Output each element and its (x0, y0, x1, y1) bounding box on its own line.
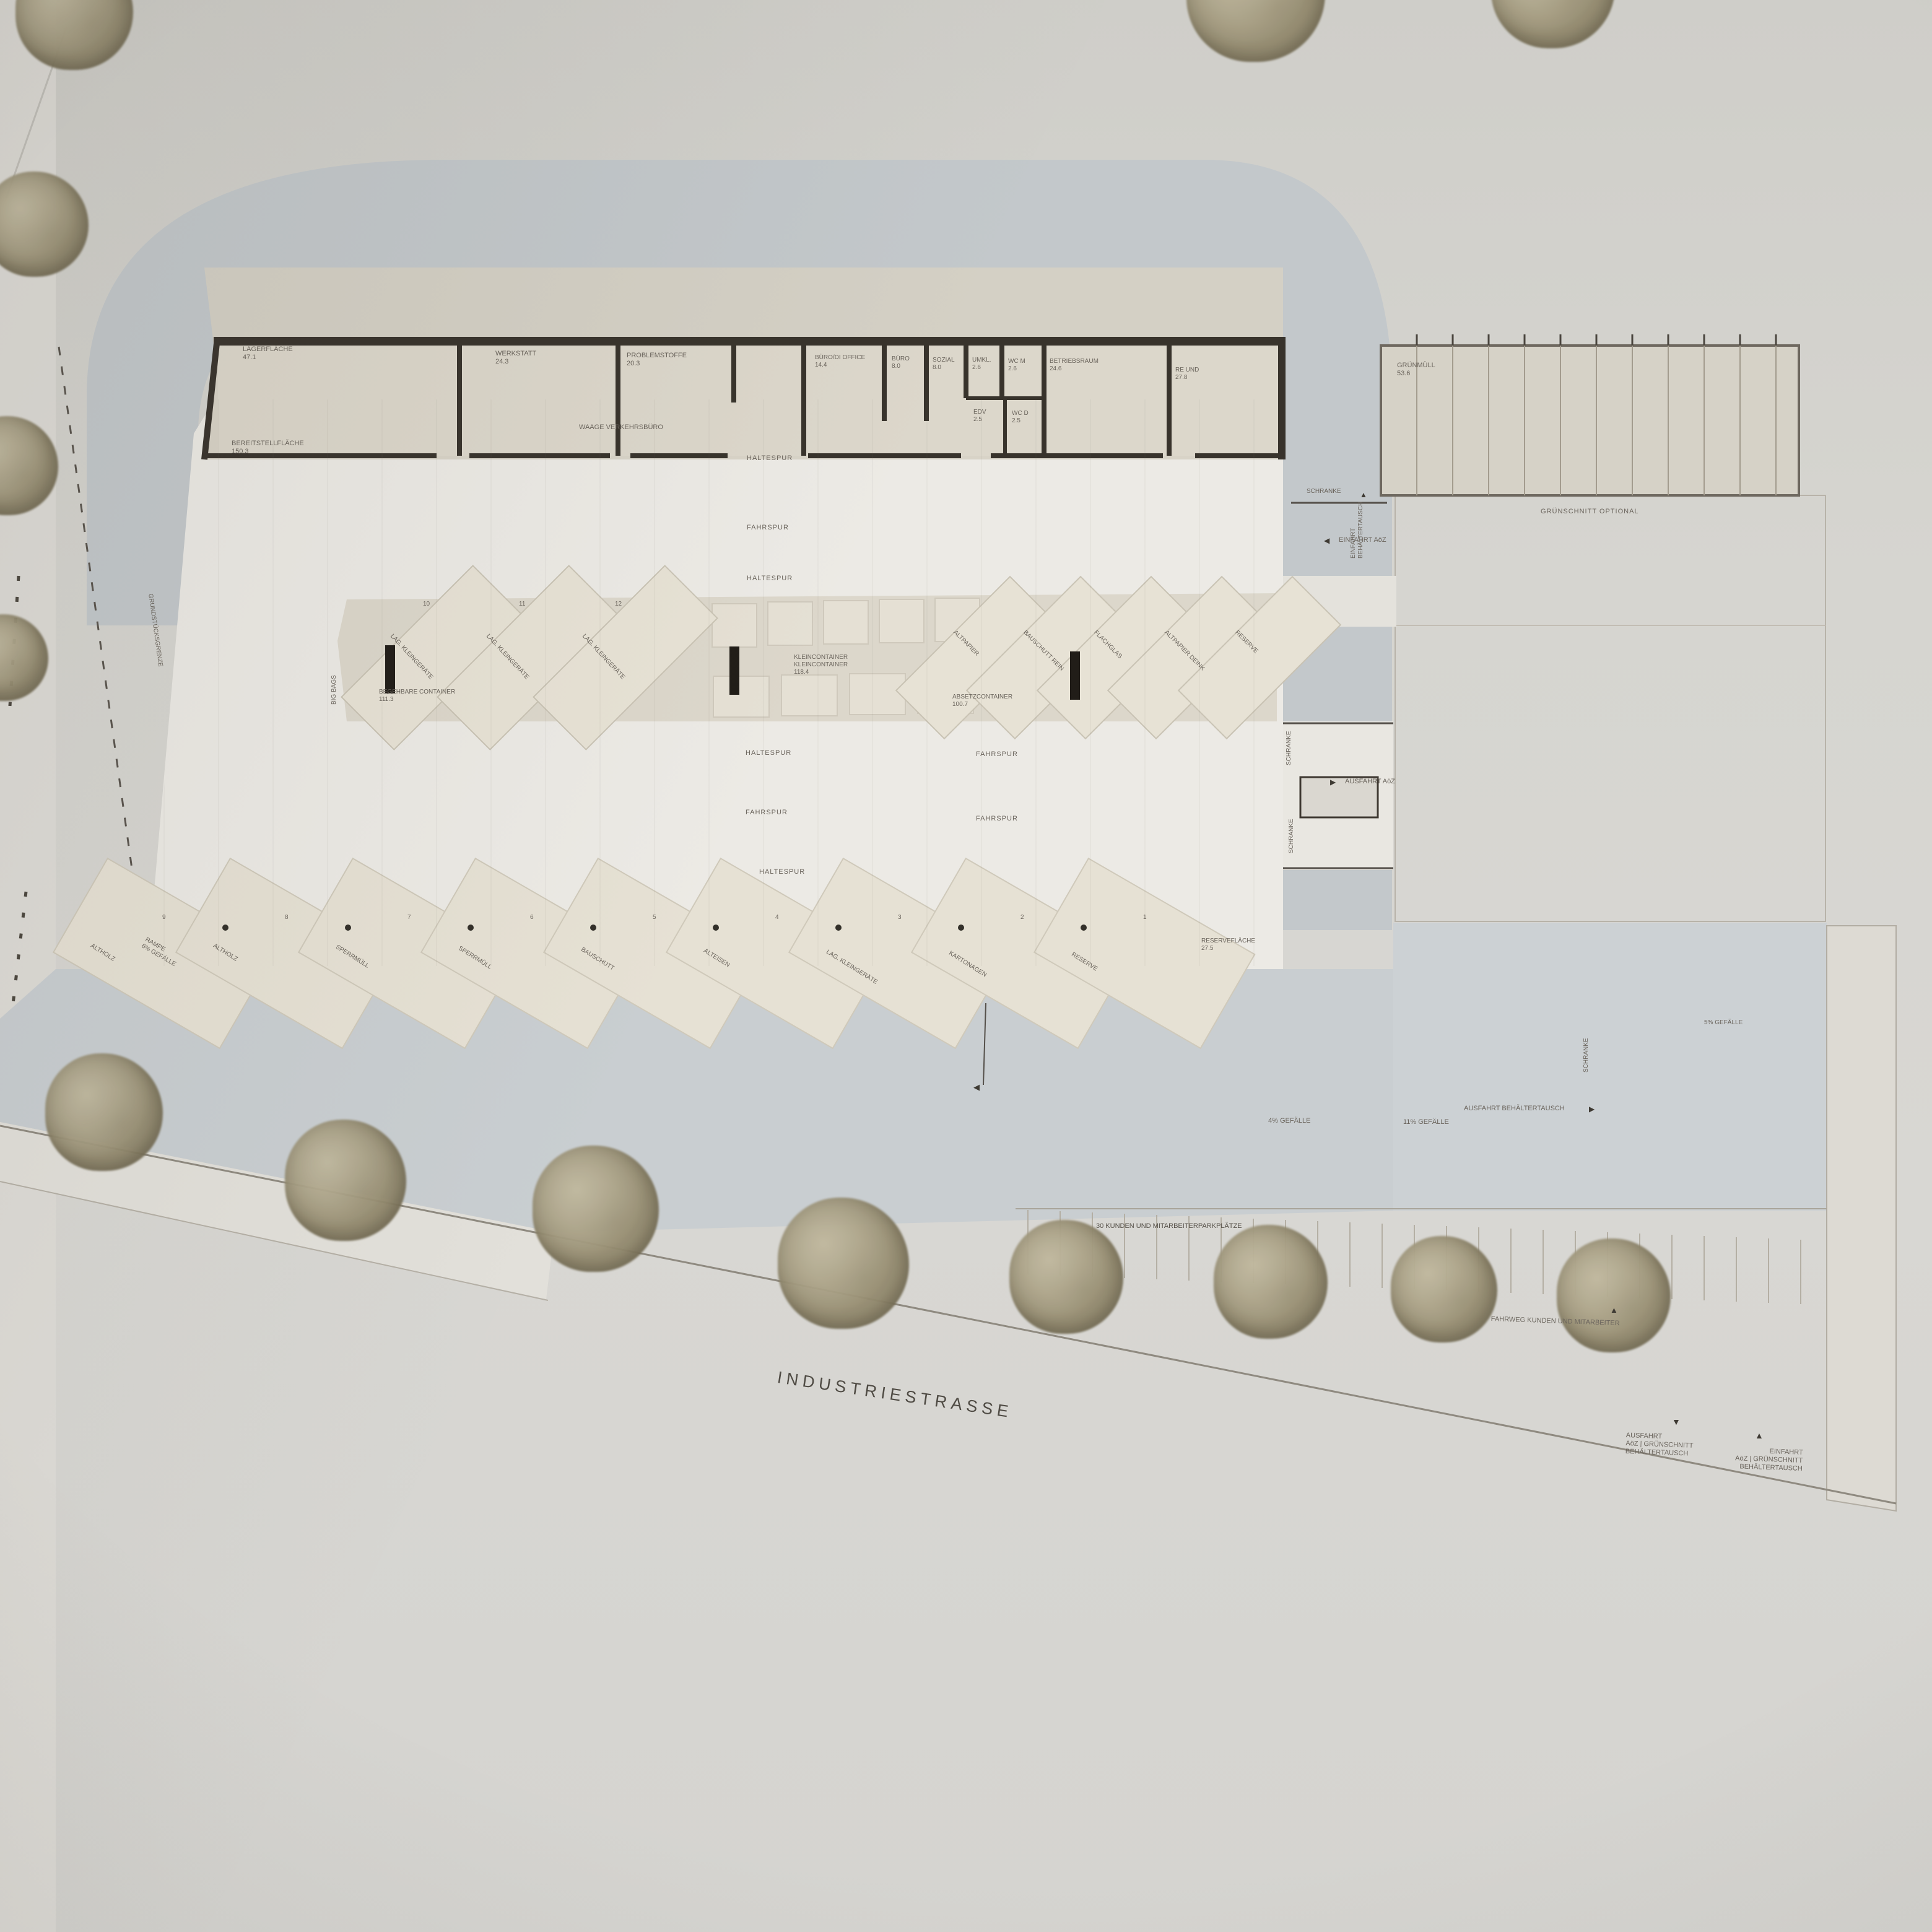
room-label: LAGERFLÄCHE47.1 (243, 346, 293, 362)
bay-number: 2 (1020, 914, 1024, 921)
tree (45, 1053, 163, 1171)
tree (1009, 1220, 1123, 1334)
bay-number: 5 (653, 914, 656, 921)
arrow-down-icon: ▼ (1672, 1417, 1681, 1427)
annex-label: GRÜNMÜLL53.6 (1397, 362, 1435, 378)
schranke-label: SCHRANKE (1288, 810, 1295, 853)
room-label: PROBLEMSTOFFE20.3 (627, 352, 687, 368)
room-label: RE UND27.8 (1175, 367, 1199, 381)
gefaelle-5-label: 5% GEFÄLLE (1704, 1019, 1743, 1027)
arrow-up-icon: ▲ (1610, 1305, 1618, 1315)
tree (533, 1146, 659, 1272)
corner-exit-label: AUSFAHRTAöZ | GRÜNSCHNITTBEHÄLTERTAUSCH (1625, 1432, 1694, 1458)
arrow-right-icon: ▶ (1330, 778, 1336, 786)
corner-entry-label: EINFAHRTAöZ | GRÜNSCHNITTBEHÄLTERTAUSCH (1697, 1445, 1803, 1473)
room-label: WERKSTATT24.3 (495, 350, 536, 366)
bay-number: 7 (407, 914, 411, 921)
tree (1391, 1236, 1497, 1342)
bay-number: 6 (530, 914, 534, 921)
arrow-left-icon: ◀ (1324, 536, 1329, 545)
site-plan-photo: LAGERFLÄCHE47.1 WERKSTATT24.3 PROBLEMSTO… (0, 0, 1932, 1932)
section-marker-icon: ◀ (973, 1082, 980, 1092)
lane-label: HALTESPUR (746, 749, 791, 757)
ausfahrt-behaeltertausch-label: AUSFAHRT BEHÄLTERTAUSCH (1464, 1105, 1565, 1113)
schranke-label: SCHRANKE (1583, 1023, 1590, 1073)
lane-label: FAHRSPUR (976, 751, 1018, 759)
lane-label: HALTESPUR (759, 868, 805, 876)
bay-number: 4 (775, 914, 779, 921)
bay-number: 12 (615, 601, 622, 608)
gefaelle-4-label: 4% GEFÄLLE (1268, 1117, 1310, 1125)
tree (1214, 1225, 1328, 1339)
schranke-label: SCHRANKE (1286, 722, 1293, 765)
arrow-up-icon: ▲ (1360, 490, 1367, 499)
lane-label: HALTESPUR (747, 575, 793, 583)
reserveflaeche-label: RESERVEFLÄCHE27.5 (1201, 938, 1255, 952)
lane-label: HALTESPUR (747, 455, 793, 463)
ausfahrt-aoz-label: AUSFAHRT AöZ (1345, 778, 1395, 786)
lane-label: FAHRSPUR (976, 815, 1018, 823)
bay-number: 9 (162, 914, 166, 921)
bay-number: 3 (898, 914, 902, 921)
bay-number: 8 (285, 914, 289, 921)
room-label: WC M2.6 (1008, 358, 1025, 373)
lane-label: FAHRSPUR (746, 809, 788, 817)
begehbare-container-label: BEGEHBARE CONTAINER111.3 (379, 689, 455, 703)
arrow-right-icon: ▶ (1589, 1105, 1595, 1113)
absetzcontainer-label: ABSETZCONTAINER100.7 (952, 694, 1012, 708)
bay-number: 11 (519, 601, 525, 608)
gruenschnitt-optional-label: GRÜNSCHNITT OPTIONAL (1541, 508, 1639, 516)
visitor-parking-zone (1393, 923, 1827, 1211)
kleincontainer-label: KLEINCONTAINERKLEINCONTAINER118.4 (794, 654, 848, 676)
room-label: BETRIEBSRAUM24.6 (1050, 358, 1099, 373)
lane-label: FAHRSPUR (747, 524, 789, 532)
einfahrt-aoz-label: EINFAHRT AöZ (1339, 536, 1386, 544)
arrow-up-icon: ▲ (1755, 1430, 1764, 1440)
room-label: SOZIAL8.0 (933, 357, 955, 372)
hall-label: WAAGE VERKEHRSBÜRO (579, 424, 663, 432)
apron-area-label: BEREITSTELLFLÄCHE150.3 (232, 440, 304, 456)
tree (1557, 1238, 1671, 1352)
bay-number: 10 (423, 601, 430, 608)
room-label: BÜRO/DI OFFICE14.4 (815, 354, 865, 369)
room-label: BÜRO8.0 (892, 355, 910, 370)
room-label: EDV2.5 (973, 409, 986, 424)
schranke-label: SCHRANKE (1307, 488, 1341, 495)
big-bags-label: BIG BAGS (331, 637, 338, 705)
tree (778, 1198, 909, 1329)
tree (285, 1120, 406, 1241)
gefaelle-11-label: 11% GEFÄLLE (1403, 1118, 1449, 1126)
bay-number: 1 (1143, 914, 1147, 921)
room-label: WC D2.5 (1012, 410, 1029, 425)
room-label: UMKL.2.6 (972, 357, 991, 372)
parking-count-label: 30 KUNDEN UND MITARBEITERPARKPLÄTZE (1096, 1222, 1242, 1230)
